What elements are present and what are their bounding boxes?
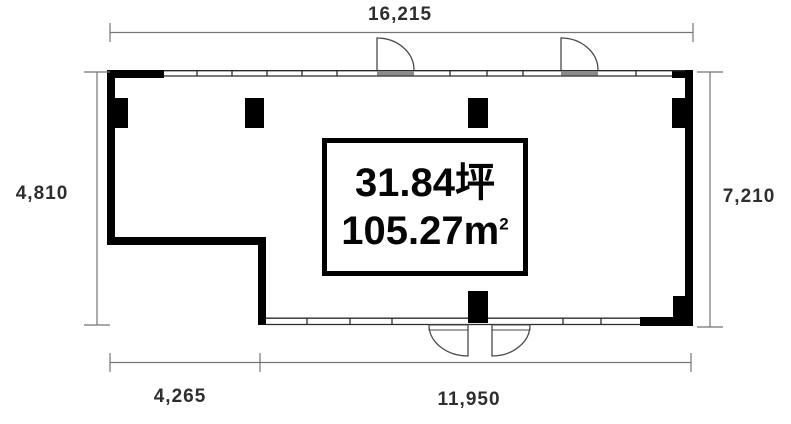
dimension-label-top: 16,215	[320, 5, 480, 24]
pillar	[672, 98, 692, 128]
pillar	[673, 296, 693, 323]
area-tsubo: 31.84坪	[355, 159, 495, 207]
pillar	[468, 291, 488, 323]
dimension-line-left	[84, 72, 110, 325]
wall-step-vertical	[258, 237, 266, 325]
door-swing-top-1	[377, 38, 414, 70]
wall-step-horizontal	[107, 237, 266, 245]
door-threshold	[429, 325, 468, 330]
dimension-label-right: 7,210	[712, 187, 786, 206]
door-swing-top-2	[561, 38, 598, 70]
pillar	[109, 98, 128, 128]
floor-plan: 16,215 4,810 7,210 4,265 11,950 31.84坪 1…	[0, 0, 791, 424]
area-sqm-superscript: 2	[499, 215, 508, 234]
dimension-label-left: 4,810	[5, 184, 79, 203]
dimension-label-bottom-left: 4,265	[140, 387, 220, 406]
dimension-line-top	[110, 23, 693, 42]
door-threshold	[561, 71, 598, 76]
pillar	[245, 98, 264, 128]
window-wall-bottom	[266, 318, 640, 325]
area-sqm: 105.27m2	[341, 207, 508, 255]
door-threshold	[492, 325, 530, 330]
wall-left	[107, 70, 115, 245]
wall-top-left-segment	[107, 70, 164, 78]
door-threshold	[377, 71, 414, 76]
dimension-line-bottom	[110, 353, 691, 372]
area-label: 31.84坪 105.27m2	[322, 138, 528, 276]
window-wall-top	[164, 70, 685, 76]
dimension-label-bottom-right: 11,950	[424, 390, 514, 409]
pillar	[468, 98, 488, 128]
